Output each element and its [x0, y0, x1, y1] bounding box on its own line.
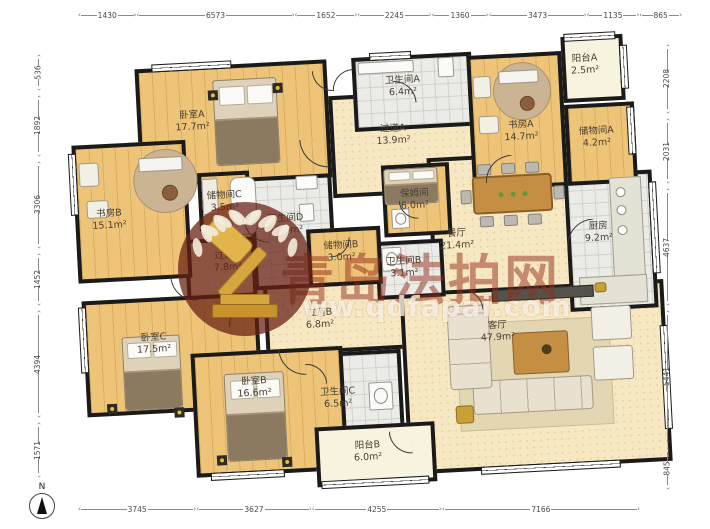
dimension-value: 1652	[315, 11, 336, 20]
kitchen-item-icon	[594, 282, 607, 293]
dimension-value: 6573	[205, 11, 226, 20]
compass: N	[28, 482, 56, 519]
sofa-icon	[446, 304, 492, 390]
dining-chair-icon	[480, 216, 495, 228]
room-area: 6.4m²	[385, 85, 421, 99]
room-label-storage-b: 储物间B3.0m²	[323, 239, 359, 265]
dimension-value: 1430	[97, 11, 118, 20]
dimension-segment: 4255	[312, 503, 442, 515]
room-area: 3.5m²	[207, 201, 243, 215]
room-area: 21.4m²	[440, 239, 475, 253]
dimension-value: 3745	[127, 505, 148, 514]
room-label-nanny-room: 保姆间6.0m²	[400, 187, 430, 212]
blanket-icon	[215, 116, 279, 165]
dimension-segment: 1430	[78, 9, 136, 21]
sink-icon	[295, 175, 318, 190]
room-label-study-b: 书房B15.1m²	[92, 207, 127, 233]
room-label-storage-c: 储物间C3.5m²	[206, 189, 242, 215]
room-area: 17.5m²	[137, 343, 172, 357]
dining-chair-icon	[528, 213, 543, 225]
dimension-value: 536	[32, 65, 45, 79]
room-label-study-a: 书房A14.7m²	[504, 118, 539, 144]
dimension-segment: 845	[661, 445, 673, 492]
room-area: 2.5m²	[571, 64, 600, 77]
dimension-value: 4255	[366, 505, 387, 514]
north-arrow-icon	[37, 497, 47, 514]
compass-north-label: N	[28, 482, 56, 492]
dimension-segment: 3306	[32, 159, 44, 251]
dimensions-top: 1430657316522245136034731135865	[78, 8, 682, 22]
pillow-icon	[247, 84, 273, 104]
room-label-bathroom-c: 卫生间C6.5m²	[320, 385, 356, 411]
room-area: 47.9m²	[481, 331, 516, 345]
dimensions-bottom: 3745362742557166	[78, 502, 640, 516]
dimension-value: 3473	[527, 11, 548, 20]
dimension-value: 2245	[384, 11, 405, 20]
armchair-icon	[593, 345, 635, 381]
room-area: 4.2m²	[579, 136, 615, 150]
floor-plan: 过道A13.9m²过道B6.8m²过道C7.8m²餐厅21.4m²客厅47.9m…	[39, 29, 676, 501]
room-area: 17.7m²	[175, 121, 210, 135]
dimension-value: 5441	[661, 367, 674, 386]
dimension-segment: 4637	[661, 186, 673, 307]
coffee-deco-icon	[541, 344, 552, 355]
dimension-value: 1892	[32, 116, 45, 135]
dimensions-left: 53618923306145243941571	[31, 52, 45, 480]
dimension-segment: 865	[639, 9, 682, 21]
dimension-value: 1135	[602, 11, 623, 20]
dimension-segment: 2245	[357, 9, 431, 21]
room-area: 6.5m²	[320, 397, 356, 411]
washer-icon	[368, 381, 393, 410]
blanket-icon	[124, 368, 182, 410]
dimensions-right: 2208203146375441845	[660, 42, 674, 492]
toilet-icon	[437, 57, 454, 78]
table-deco-icon	[510, 192, 515, 197]
dimension-value: 1452	[32, 270, 45, 289]
speaker-icon	[217, 455, 228, 466]
pillow-icon	[412, 170, 434, 180]
dimension-segment: 3627	[196, 503, 311, 515]
dimension-segment: 3473	[489, 9, 587, 21]
dimension-value: 2208	[661, 69, 674, 88]
room-area: 6.0m²	[400, 199, 429, 212]
dimension-segment: 1360	[431, 9, 488, 21]
dimension-segment: 3745	[78, 503, 196, 515]
room-label-hallway-c: 过道C7.8m²	[213, 249, 242, 274]
compass-icon	[29, 493, 55, 519]
blanket-icon	[227, 411, 287, 461]
room-area: 15.1m²	[92, 219, 127, 233]
room-area: 14.7m²	[504, 130, 539, 144]
armchair-icon	[472, 76, 491, 99]
room-label-bedroom-b: 卧室B16.6m²	[237, 375, 272, 401]
room-label-balcony-b: 阳台B6.0m²	[353, 439, 382, 464]
dimension-segment: 2208	[661, 42, 673, 116]
room-area: 3.0m²	[324, 251, 360, 265]
pillow-icon	[388, 171, 410, 181]
dining-chair-icon	[504, 215, 519, 227]
dimension-value: 4637	[661, 238, 674, 257]
dimension-value: 4394	[32, 355, 45, 374]
window	[626, 106, 637, 154]
dimension-segment: 1571	[32, 420, 44, 480]
dimension-segment: 6573	[136, 9, 294, 21]
dimension-value: 1360	[449, 11, 470, 20]
room-area: 13.9m²	[376, 134, 411, 148]
desk-icon	[138, 156, 183, 172]
coffee-table-icon	[512, 330, 570, 375]
speaker-icon	[208, 90, 219, 101]
dimension-segment: 5441	[661, 308, 673, 445]
room-area: 7.8m²	[214, 261, 243, 274]
room-label-bathroom-d: 卫生间D11.9m²	[267, 212, 304, 238]
dimension-segment: 4394	[32, 308, 44, 420]
room-label-storage-a: 储物间A4.2m²	[579, 125, 615, 151]
dimension-value: 3306	[32, 195, 45, 214]
room-label-hallway-a: 过道A13.9m²	[376, 122, 411, 148]
dining-chair-icon	[460, 190, 472, 205]
room-area: 16.6m²	[237, 387, 272, 401]
dimension-value: 865	[653, 11, 669, 20]
pillow-icon	[218, 86, 244, 106]
armchair-icon	[478, 115, 499, 134]
bed-icon	[212, 77, 280, 166]
speaker-icon	[107, 404, 118, 415]
floor-lamp-icon	[456, 405, 475, 424]
speaker-icon	[282, 457, 293, 468]
room-label-kitchen: 厨房9.2m²	[584, 220, 613, 245]
floor-plan-page: 1430657316522245136034731135865 37453627…	[0, 0, 710, 529]
dimension-segment: 7166	[442, 503, 640, 515]
room-label-bathroom-b: 卫生间B3.1m²	[386, 255, 422, 281]
room-label-living-room: 客厅47.9m²	[480, 319, 515, 345]
room-label-bedroom-c: 卧室C17.5m²	[136, 331, 171, 357]
dimension-value: 3627	[243, 505, 264, 514]
dimension-segment: 536	[32, 52, 44, 93]
room-label-balcony-a: 阳台A2.5m²	[570, 52, 599, 77]
dimension-segment: 1892	[32, 93, 44, 159]
dining-chair-icon	[525, 161, 540, 173]
speaker-icon	[272, 83, 283, 94]
room-area: 9.2m²	[585, 232, 614, 245]
dimension-segment: 1135	[587, 9, 640, 21]
speaker-icon	[174, 407, 185, 418]
room-label-hallway-b: 过道B6.8m²	[305, 306, 334, 331]
desk-icon	[498, 69, 539, 84]
room-area: 6.8m²	[306, 318, 335, 331]
room-area: 3.1m²	[387, 267, 423, 281]
dimension-segment: 2031	[661, 116, 673, 187]
window	[619, 45, 629, 89]
dimension-value: 1571	[32, 440, 45, 459]
room-area: 6.0m²	[354, 451, 383, 464]
armchair-icon	[591, 305, 633, 341]
dimension-segment: 1652	[295, 9, 358, 21]
door-arc-icon	[332, 69, 354, 91]
room-label-dining-room: 餐厅21.4m²	[439, 227, 474, 253]
room-label-bedroom-a: 卧室A17.7m²	[175, 109, 210, 135]
dimension-value: 7166	[530, 505, 551, 514]
dining-chair-icon	[553, 185, 565, 200]
room-area: 11.9m²	[268, 224, 304, 238]
armchair-icon	[78, 162, 99, 187]
room-label-bathroom-a: 卫生间A6.4m²	[385, 74, 421, 100]
dimension-value: 845	[661, 461, 674, 475]
dimension-segment: 1452	[32, 251, 44, 309]
dimension-value: 2031	[661, 142, 674, 161]
